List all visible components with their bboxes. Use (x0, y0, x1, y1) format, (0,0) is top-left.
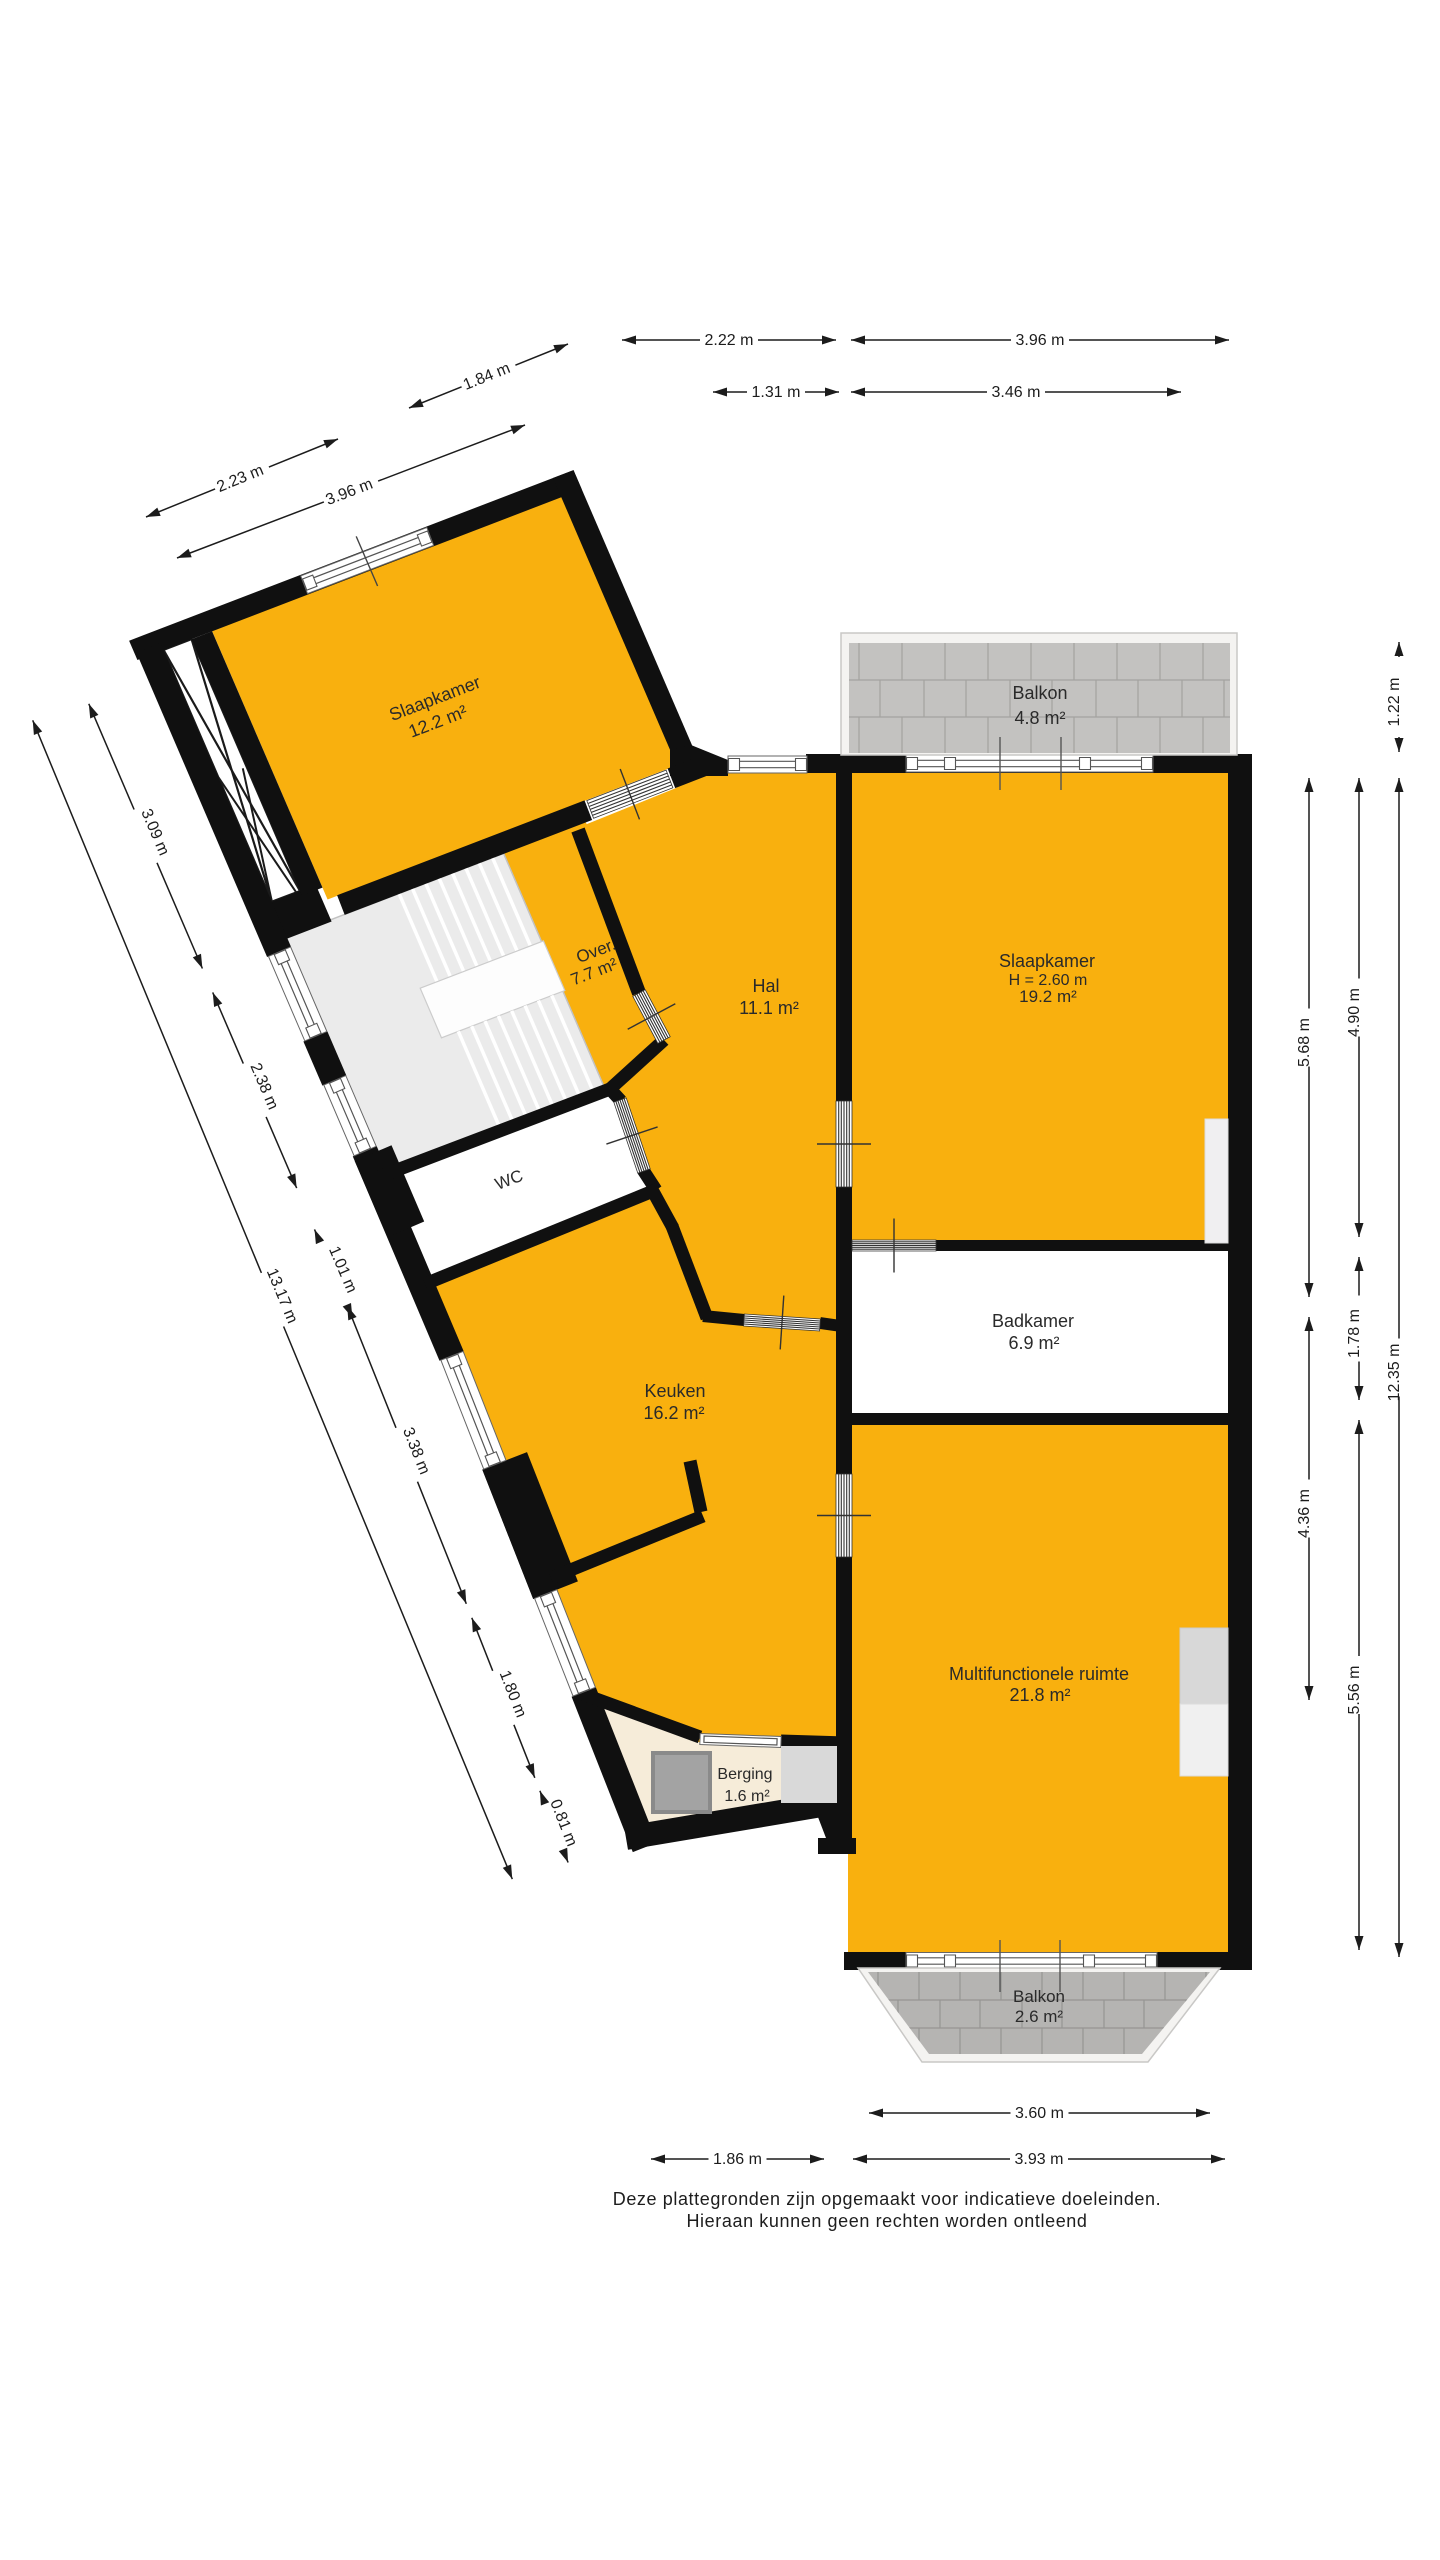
svg-text:3.96 m: 3.96 m (1016, 332, 1065, 349)
svg-text:2.6 m²: 2.6 m² (1015, 2007, 1064, 2026)
svg-text:1.78 m: 1.78 m (1346, 1309, 1363, 1358)
svg-text:5.56 m: 5.56 m (1346, 1666, 1363, 1715)
svg-text:19.2 m²: 19.2 m² (1019, 987, 1077, 1006)
svg-text:6.9 m²: 6.9 m² (1008, 1333, 1059, 1353)
svg-text:Balkon: Balkon (1013, 1987, 1065, 2006)
svg-text:12.35 m: 12.35 m (1386, 1344, 1403, 1402)
svg-text:Multifunctionele ruimte: Multifunctionele ruimte (949, 1664, 1129, 1684)
svg-text:Deze plattegronden zijn opgema: Deze plattegronden zijn opgemaakt voor i… (613, 2189, 1162, 2209)
svg-text:3.46 m: 3.46 m (992, 384, 1041, 401)
svg-text:1.6 m²: 1.6 m² (724, 1788, 770, 1805)
svg-text:1.22 m: 1.22 m (1386, 678, 1403, 727)
svg-text:16.2 m²: 16.2 m² (643, 1403, 704, 1423)
svg-text:11.1 m²: 11.1 m² (739, 998, 799, 1018)
svg-text:Hieraan kunnen geen rechten wo: Hieraan kunnen geen rechten worden ontle… (686, 2211, 1087, 2231)
svg-text:Berging: Berging (717, 1766, 772, 1783)
svg-text:5.68 m: 5.68 m (1296, 1018, 1313, 1067)
svg-text:21.8 m²: 21.8 m² (1009, 1685, 1070, 1705)
svg-text:Keuken: Keuken (644, 1381, 705, 1401)
svg-text:1.86 m: 1.86 m (713, 2151, 762, 2168)
svg-text:Slaapkamer: Slaapkamer (999, 951, 1095, 971)
svg-text:1.31 m: 1.31 m (752, 384, 801, 401)
svg-text:4.90 m: 4.90 m (1346, 988, 1363, 1037)
svg-text:Hal: Hal (752, 976, 779, 996)
svg-text:3.93 m: 3.93 m (1015, 2151, 1064, 2168)
svg-text:4.8 m²: 4.8 m² (1014, 708, 1065, 728)
svg-text:3.60 m: 3.60 m (1015, 2105, 1064, 2122)
svg-text:4.36 m: 4.36 m (1296, 1489, 1313, 1538)
svg-text:Balkon: Balkon (1012, 683, 1067, 703)
svg-text:2.22 m: 2.22 m (705, 332, 754, 349)
svg-text:Badkamer: Badkamer (992, 1311, 1074, 1331)
